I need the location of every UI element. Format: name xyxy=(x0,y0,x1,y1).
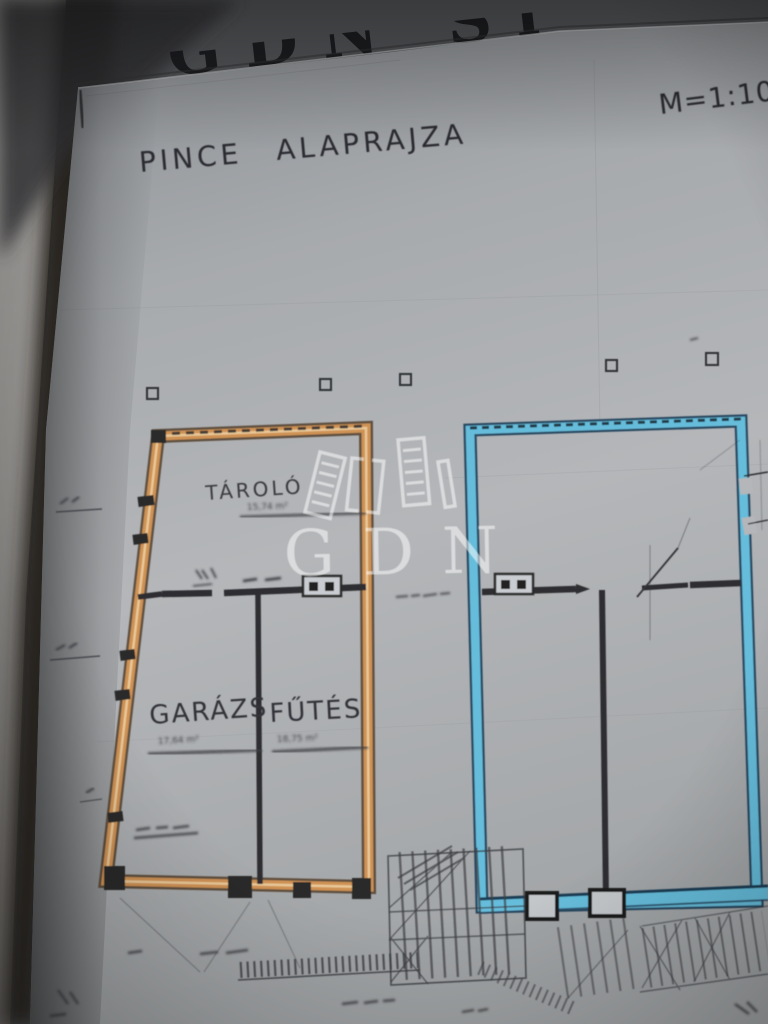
floor-plan-photo: GDN Si PINCEALAPRAJZA M=1:10 xyxy=(0,0,768,1024)
vignette xyxy=(0,0,768,1024)
floor-plan-scan: GDN Si PINCEALAPRAJZA M=1:10 xyxy=(0,0,768,1024)
